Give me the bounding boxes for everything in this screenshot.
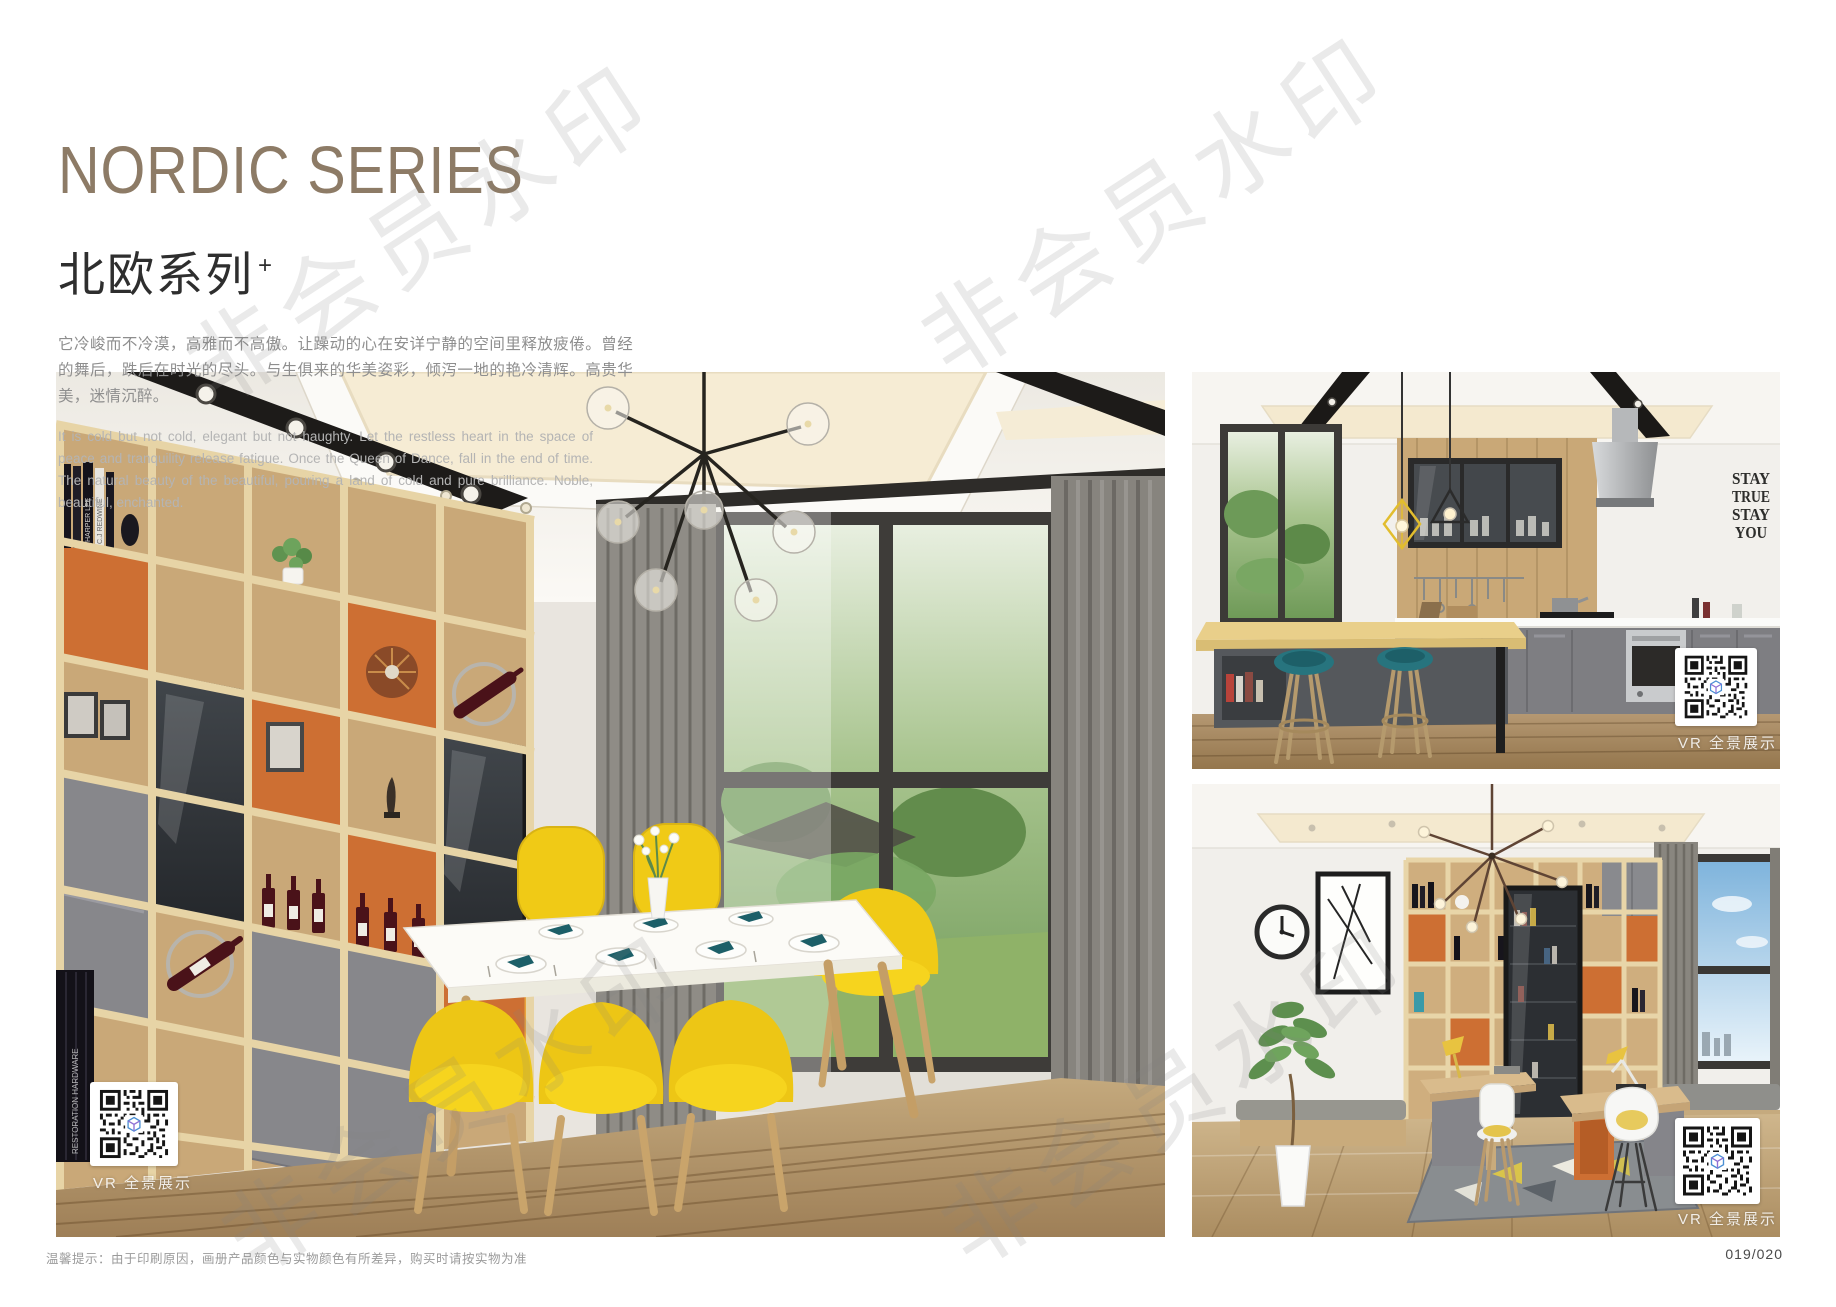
window-garden-view [1216, 424, 1346, 632]
study-room-photo: VR 全景展示 [1192, 784, 1780, 1237]
kitchen-photo: STAY TRUE STAY YOU [1192, 372, 1780, 769]
watermark-text: 非会员水印 [891, 0, 1414, 404]
wall-clock [1257, 907, 1307, 957]
svg-text:STAY: STAY [1732, 505, 1770, 524]
vr-panorama-label: VR 全景展示 [1678, 1208, 1777, 1229]
vr-panorama-label: VR 全景展示 [93, 1172, 192, 1193]
qr-pattern-icon [1680, 1123, 1755, 1199]
glass-upper-cabinet [1408, 458, 1562, 548]
book-set-label: RESTORATION HARDWARE [71, 1048, 80, 1154]
svg-text:YOU: YOU [1735, 523, 1767, 542]
vr-qr-code [1675, 648, 1757, 726]
qr-pattern-icon [95, 1087, 173, 1161]
svg-text:TRUE: TRUE [1732, 487, 1770, 506]
series-title-zh: 北欧系列+ [58, 249, 678, 301]
wall-decal-text: STAY TRUE STAY YOU [1732, 469, 1770, 542]
vr-qr-code [1675, 1118, 1760, 1204]
vr-qr-code [90, 1082, 178, 1166]
qr-pattern-icon [1680, 653, 1752, 721]
page-number: 019/020 [1660, 1246, 1783, 1262]
series-description-zh: 它冷峻而不冷漠，高雅而不高傲。让躁动的心在安详宁静的空间里释放疲倦。曾经的舞后，… [58, 332, 633, 410]
series-title-zh-text: 北欧系列 [58, 248, 254, 301]
bench [1236, 1100, 1406, 1146]
window-sky-view [1690, 854, 1780, 1069]
series-description-en: It is cold but not cold, elegant but not… [58, 426, 593, 514]
wall-art-frame [1318, 874, 1388, 992]
page-header: NORDIC SERIES 北欧系列+ 它冷峻而不冷漠，高雅而不高傲。让躁动的心… [58, 92, 678, 527]
series-title-superscript: + [258, 252, 274, 279]
ceiling [1192, 784, 1780, 848]
catalog-page: NORDIC SERIES 北欧系列+ 它冷峻而不冷漠，高雅而不高傲。让躁动的心… [0, 0, 1836, 1307]
footer-disclaimer: 温馨提示：由于印刷原因，画册产品颜色与实物颜色有所差异，购买时请按实物为准 [46, 1248, 527, 1267]
series-title-en: NORDIC SERIES [58, 137, 591, 204]
vr-panorama-label: VR 全景展示 [1678, 732, 1777, 753]
svg-text:STAY: STAY [1732, 469, 1770, 488]
black-books-stack: RESTORATION HARDWARE [56, 970, 94, 1162]
